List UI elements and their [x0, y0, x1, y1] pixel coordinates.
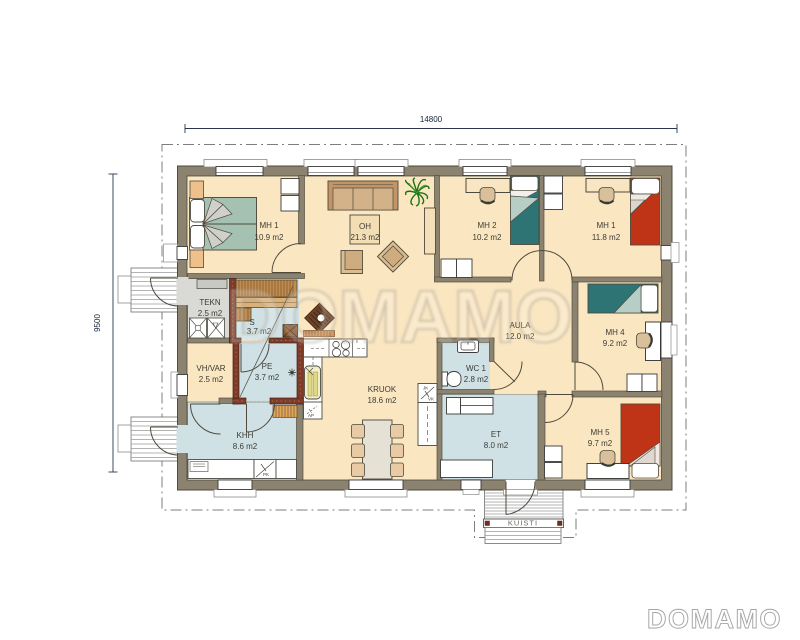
svg-text:8.0 m2: 8.0 m2	[484, 441, 509, 450]
svg-text:9500: 9500	[93, 314, 102, 332]
svg-text:ET: ET	[491, 430, 501, 439]
svg-text:2.8 m2: 2.8 m2	[464, 375, 489, 384]
svg-text:2.5 m2: 2.5 m2	[199, 375, 224, 384]
svg-text:VH/VAR: VH/VAR	[196, 364, 225, 373]
svg-text:MH 2: MH 2	[477, 221, 497, 230]
svg-text:9.2 m2: 9.2 m2	[603, 339, 628, 348]
svg-text:8.6 m2: 8.6 m2	[233, 442, 258, 451]
svg-text:AP: AP	[308, 413, 314, 418]
svg-text:KHH: KHH	[237, 431, 254, 440]
svg-text:PK: PK	[263, 472, 269, 477]
svg-text:MH 5: MH 5	[590, 428, 610, 437]
svg-text:MH 1: MH 1	[596, 221, 616, 230]
svg-text:14800: 14800	[420, 115, 443, 124]
svg-text:WC 1: WC 1	[466, 364, 487, 373]
svg-text:KRUOK: KRUOK	[368, 385, 397, 394]
svg-text:21.3 m2: 21.3 m2	[351, 233, 380, 242]
svg-text:10.9 m2: 10.9 m2	[255, 233, 284, 242]
svg-text:VK: VK	[428, 397, 434, 402]
svg-text:3.7 m2: 3.7 m2	[255, 373, 280, 382]
svg-text:JK: JK	[423, 386, 428, 391]
svg-text:18.6 m2: 18.6 m2	[368, 396, 397, 405]
svg-text:9.7 m2: 9.7 m2	[588, 439, 613, 448]
svg-text:MH 1: MH 1	[259, 221, 279, 230]
svg-text:OH: OH	[359, 222, 371, 231]
svg-text:DOMAMO: DOMAMO	[647, 604, 782, 634]
svg-text:MH 4: MH 4	[605, 328, 625, 337]
svg-text:11.8 m2: 11.8 m2	[592, 233, 621, 242]
svg-text:10.2 m2: 10.2 m2	[473, 233, 502, 242]
svg-text:2.5 m2: 2.5 m2	[198, 309, 223, 318]
svg-text:KUISTI: KUISTI	[508, 519, 538, 528]
svg-text:PE: PE	[262, 362, 273, 371]
svg-text:DOMAMO: DOMAMO	[227, 275, 572, 358]
svg-text:TEKN: TEKN	[199, 298, 221, 307]
